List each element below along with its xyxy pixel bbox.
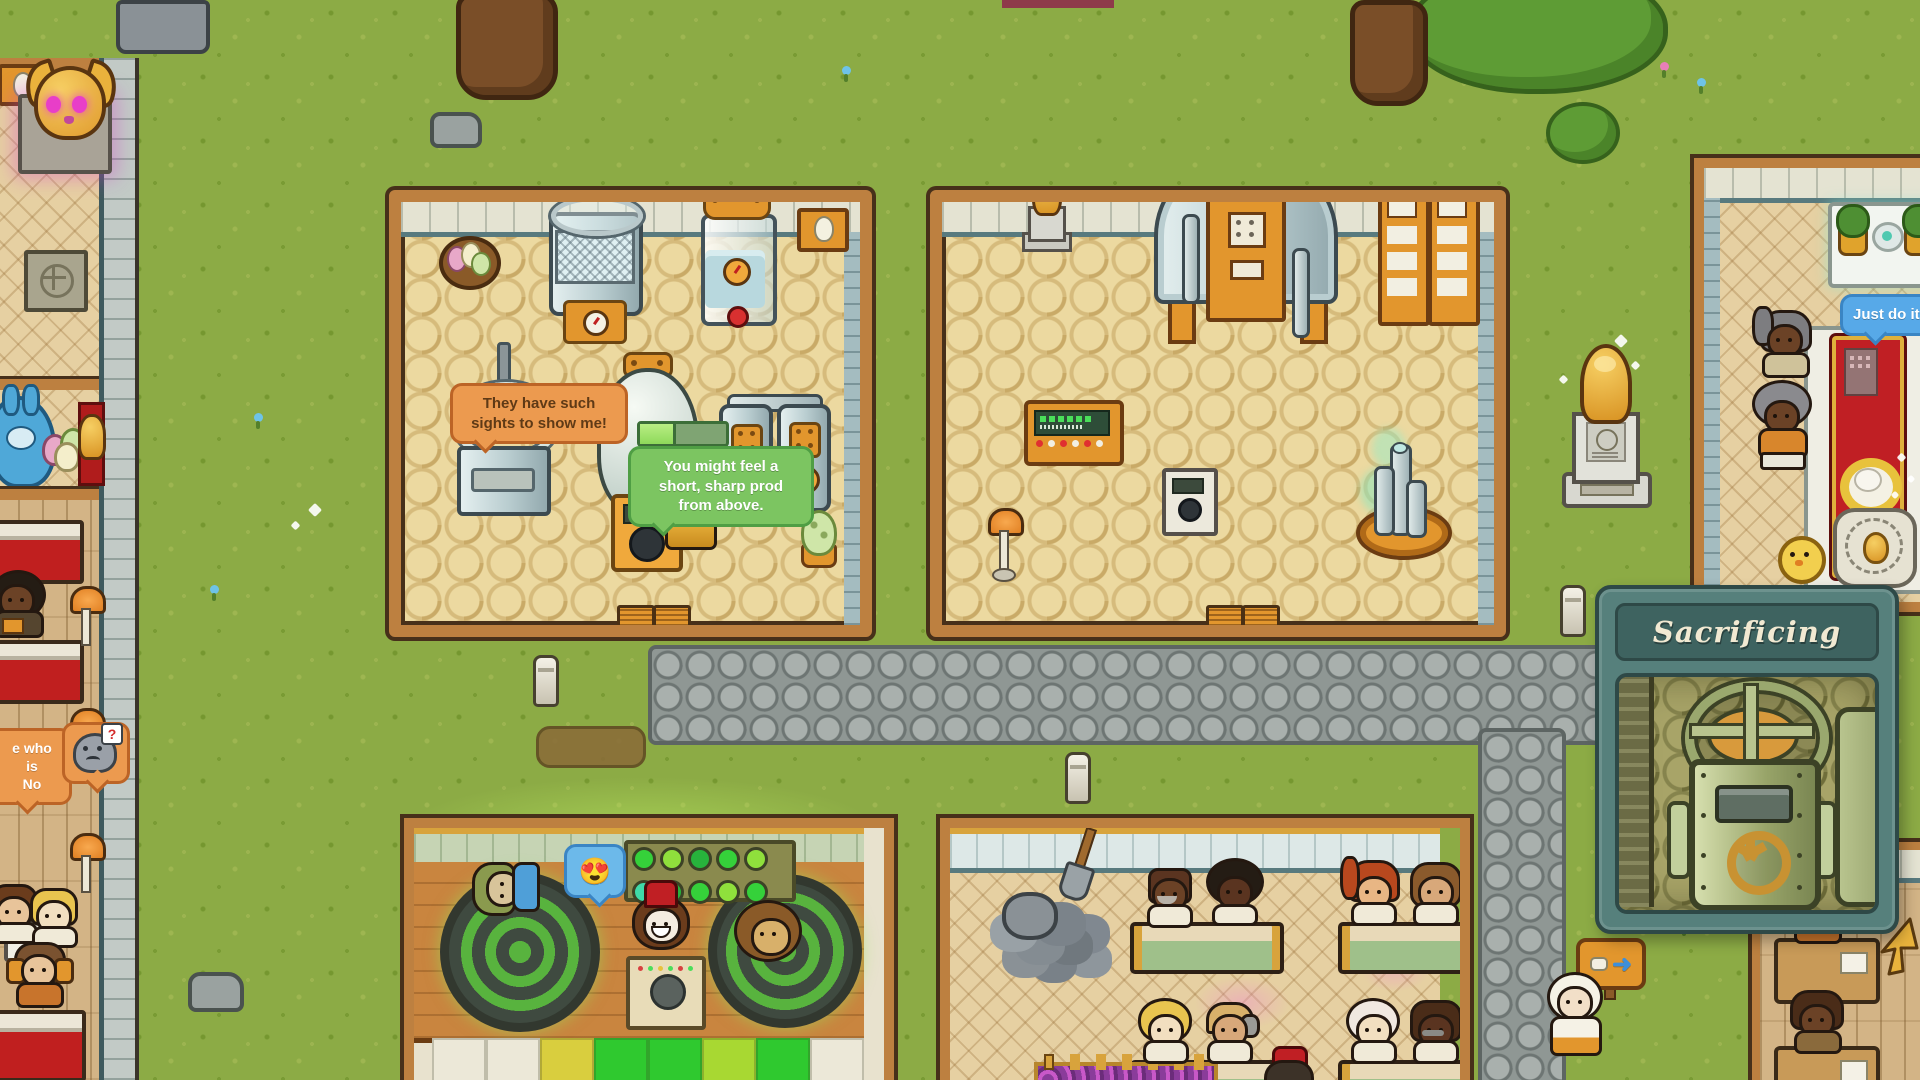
lab-door[interactable]	[653, 605, 691, 629]
building-edge	[1002, 0, 1114, 8]
bubble-line: No	[23, 776, 42, 792]
sacrificing-preview-image	[1615, 673, 1879, 914]
chick[interactable]	[1778, 536, 1826, 584]
rock	[430, 112, 482, 148]
incense-pipes[interactable]	[1350, 422, 1450, 552]
egg-picture-frame[interactable]	[797, 208, 849, 252]
preview-side-structure	[1835, 707, 1879, 907]
skull-cranium	[34, 66, 106, 140]
water-tank-machine[interactable]	[695, 190, 775, 336]
altar-table[interactable]	[1828, 202, 1920, 288]
left-right-wall	[99, 58, 139, 1080]
lab-right-wall	[844, 232, 860, 625]
shrine-door[interactable]	[1242, 605, 1280, 629]
shrine-right-wall	[1478, 232, 1494, 625]
speech-bubble-sights: They have such sights to show me!	[450, 383, 628, 444]
sparkle	[291, 521, 301, 531]
lab-door[interactable]	[617, 605, 655, 629]
arrow-icon: ➜	[1612, 950, 1632, 979]
control-box[interactable]	[1162, 468, 1218, 536]
sparkle	[308, 503, 322, 517]
rock-pile[interactable]	[1002, 892, 1058, 940]
egg-nest[interactable]	[439, 236, 501, 290]
gold-figurine[interactable]	[78, 414, 106, 460]
flower-blue	[254, 413, 263, 422]
rock	[188, 972, 244, 1012]
outdoor-statue[interactable]	[1558, 346, 1648, 506]
centrifuge-machine[interactable]	[549, 196, 643, 346]
flower-bed[interactable]	[1034, 1062, 1218, 1080]
red-bench[interactable]	[0, 1010, 86, 1080]
bollard-lamp[interactable]	[1065, 752, 1091, 804]
game-scene: e who is No ?	[0, 0, 1920, 1080]
speech-bubble-just-do-it: Just do it w	[1840, 294, 1920, 336]
preview-tank	[1681, 681, 1817, 903]
pew-bench	[1130, 922, 1284, 974]
plant	[1836, 204, 1870, 238]
flower-pink	[1660, 62, 1669, 71]
press-machine[interactable]	[1154, 190, 1338, 342]
progress-fill	[640, 424, 676, 444]
dance-floor	[432, 1038, 866, 1080]
progress-bar	[637, 421, 729, 447]
octagon-pedestal[interactable]	[1833, 508, 1917, 588]
right-top-wall	[1704, 168, 1920, 203]
preview-side-structure	[1615, 677, 1654, 907]
stone-plaque[interactable]	[24, 250, 88, 312]
building-left	[0, 58, 139, 1080]
heart-eyes-emoji: 😍	[579, 856, 611, 886]
emoji-bubble: 😍	[564, 844, 626, 898]
bollard-lamp[interactable]	[1560, 585, 1586, 637]
bubble-text: They have such sights to show me!	[471, 395, 607, 432]
pew[interactable]	[1338, 1004, 1470, 1080]
horned-skull-statue[interactable]	[28, 58, 108, 158]
offering-plate	[1872, 222, 1904, 252]
bush	[1546, 102, 1620, 164]
dirt-patch	[536, 726, 646, 768]
sacrificing-panel[interactable]: Sacrificing	[1595, 585, 1899, 934]
room-hypno	[404, 818, 894, 1080]
statuette[interactable]	[1020, 190, 1068, 276]
stone-block	[116, 0, 210, 54]
mushroom-lamp[interactable]	[70, 586, 100, 650]
question-badge: ?	[101, 723, 123, 745]
panel-title-text: Sacrificing	[1653, 615, 1841, 649]
floor-lamp[interactable]	[988, 508, 1018, 580]
thought-bubble-question: ?	[62, 722, 130, 784]
bubble-text: You might feel a short, sharp prod from …	[659, 458, 783, 514]
pew[interactable]	[1130, 866, 1280, 974]
shelf-unit[interactable]	[1428, 190, 1480, 326]
speech-bubble-prod: You might feel a short, sharp prod from …	[628, 446, 814, 527]
mushroom-lamp[interactable]	[70, 833, 100, 897]
bubble-text: Just do it w	[1853, 306, 1920, 323]
shelf-unit[interactable]	[1378, 190, 1430, 326]
cobblestone-path	[648, 645, 1616, 745]
tree-trunk	[456, 0, 558, 100]
flower-blue	[1697, 78, 1706, 87]
pew-bench	[1338, 922, 1470, 974]
flower-blue	[842, 66, 851, 75]
sacrificing-panel-title: Sacrificing	[1615, 603, 1879, 661]
bubble-line: e who is	[12, 740, 52, 774]
room-shrine	[930, 190, 1506, 637]
console-desk[interactable]	[1024, 400, 1124, 466]
tree-canopy	[1408, 0, 1668, 94]
shrine-door[interactable]	[1206, 605, 1244, 629]
pew[interactable]	[1338, 866, 1470, 974]
bollard-lamp[interactable]	[533, 655, 559, 707]
tree-trunk	[1350, 0, 1428, 106]
operator-desk[interactable]	[626, 956, 706, 1030]
room-congregation	[940, 818, 1470, 1080]
flower-blue	[210, 585, 219, 594]
right-left-wall	[1704, 198, 1720, 602]
